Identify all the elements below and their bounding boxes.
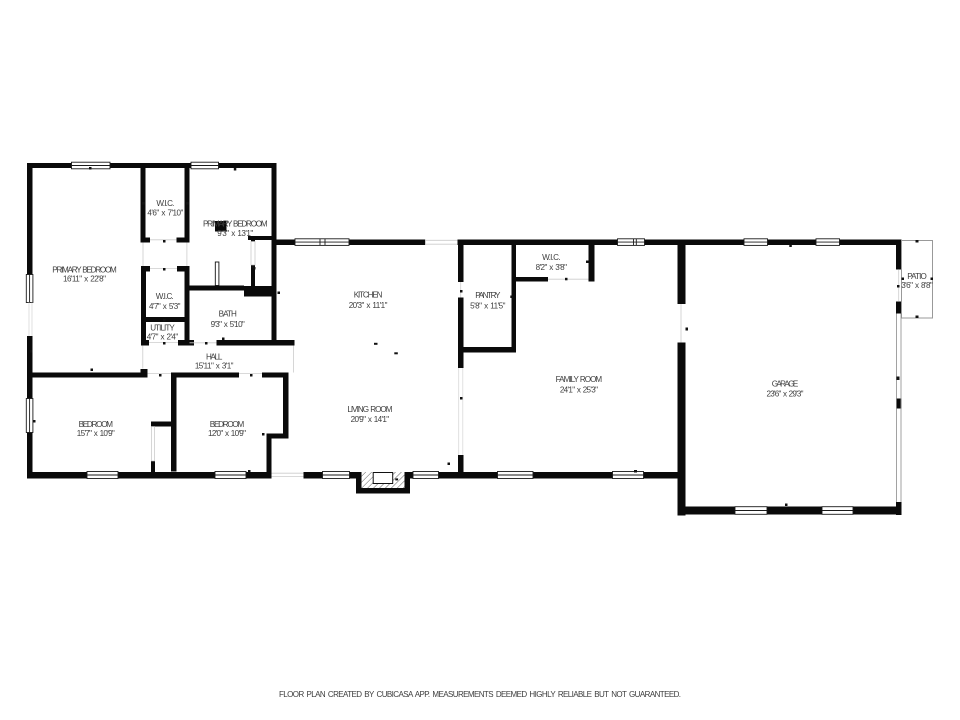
svg-text:PRIMARY BEDROOM: PRIMARY BEDROOM — [203, 220, 268, 229]
svg-text:UTILITY: UTILITY — [150, 323, 175, 332]
svg-text:PRIMARY BEDROOM: PRIMARY BEDROOM — [52, 265, 117, 274]
svg-text:23'6" x 29'3": 23'6" x 29'3" — [767, 389, 804, 398]
svg-text:4'7" x 2'4": 4'7" x 2'4" — [147, 332, 179, 341]
svg-text:GARAGE: GARAGE — [772, 379, 799, 388]
svg-text:3'6" x 8'8": 3'6" x 8'8" — [901, 281, 933, 290]
svg-text:4'6" x 7'10": 4'6" x 7'10" — [147, 209, 183, 218]
svg-text:9'3" x 5'10": 9'3" x 5'10" — [211, 320, 245, 329]
svg-text:8'2" x 3'8": 8'2" x 3'8" — [536, 263, 567, 272]
svg-text:FAMILY ROOM: FAMILY ROOM — [556, 375, 603, 384]
svg-text:BATH: BATH — [219, 310, 237, 319]
svg-text:4'7" x 5'3": 4'7" x 5'3" — [149, 302, 181, 311]
svg-text:BEDROOM: BEDROOM — [79, 420, 114, 429]
svg-text:20'3" x 11'1": 20'3" x 11'1" — [349, 301, 388, 310]
svg-text:5'8" x 11'5": 5'8" x 11'5" — [470, 301, 506, 310]
svg-text:12'0" x 10'9": 12'0" x 10'9" — [208, 429, 246, 438]
svg-text:W.I.C.: W.I.C. — [156, 199, 174, 208]
svg-text:W.I.C.: W.I.C. — [542, 253, 560, 262]
svg-text:FLOOR PLAN CREATED BY CUBICASA: FLOOR PLAN CREATED BY CUBICASA APP. MEAS… — [279, 690, 681, 699]
svg-text:KITCHEN: KITCHEN — [354, 291, 383, 300]
svg-text:HALL: HALL — [206, 353, 223, 362]
svg-text:BEDROOM: BEDROOM — [210, 420, 245, 429]
svg-text:PATIO: PATIO — [907, 272, 927, 281]
svg-text:W.I.C.: W.I.C. — [156, 292, 174, 301]
svg-text:16'11" x 22'8": 16'11" x 22'8" — [63, 275, 106, 284]
svg-text:15'11" x 3'1": 15'11" x 3'1" — [195, 361, 234, 370]
svg-text:PANTRY: PANTRY — [475, 291, 501, 300]
svg-text:9'3" x 13'1": 9'3" x 13'1" — [217, 229, 253, 238]
svg-text:15'7" x 10'9": 15'7" x 10'9" — [77, 429, 115, 438]
svg-text:LIVING ROOM: LIVING ROOM — [347, 405, 392, 414]
svg-text:24'1" x 25'3": 24'1" x 25'3" — [560, 385, 598, 394]
svg-text:20'9" x 14'1": 20'9" x 14'1" — [351, 415, 390, 424]
